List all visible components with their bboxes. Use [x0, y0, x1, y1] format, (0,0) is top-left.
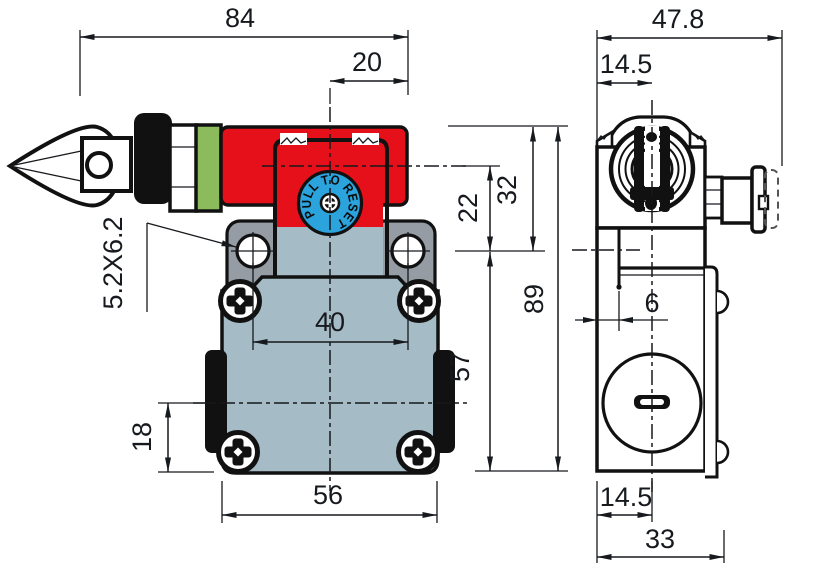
bellows-seal [134, 113, 172, 204]
front-view: PULL TO RESET 84 20 40 [10, 3, 568, 523]
svg-text:40: 40 [315, 307, 345, 337]
dim-body-depth: 33 [597, 524, 724, 563]
back-plate-edge [705, 267, 728, 477]
svg-text:14.5: 14.5 [600, 49, 653, 79]
dim-top-offset: 14.5 [597, 49, 652, 83]
drawing-canvas: PULL TO RESET 84 20 40 [0, 0, 837, 573]
svg-text:33: 33 [645, 524, 675, 554]
svg-text:32: 32 [492, 175, 522, 205]
cover-screw [400, 282, 439, 321]
reset-knob-side [705, 167, 778, 232]
svg-text:84: 84 [225, 3, 255, 33]
dim-body-width: 56 [222, 480, 437, 523]
dim-knob-to-right: 20 [330, 47, 408, 104]
hex-nut [170, 125, 197, 211]
head-ear-left [597, 132, 612, 147]
svg-text:89: 89 [519, 284, 549, 314]
head-ear-right [690, 132, 705, 147]
rope-eye [10, 126, 131, 205]
flange-notch-right [352, 133, 379, 145]
svg-text:5.2X6.2: 5.2X6.2 [98, 216, 128, 309]
dim-tab-to-bottom: 18 [127, 403, 214, 472]
flange-notch-left [280, 133, 307, 145]
eye-hole [87, 153, 111, 177]
svg-text:18: 18 [127, 422, 157, 452]
dim-top-to-holes: 32 [448, 126, 568, 251]
technical-drawing: PULL TO RESET 84 20 40 [0, 0, 837, 573]
seal-ring [196, 125, 221, 211]
dim-slot-hole-callout: 5.2X6.2 [98, 216, 236, 312]
svg-text:57: 57 [445, 352, 475, 382]
cover-screw [399, 433, 438, 472]
svg-text:22: 22 [453, 193, 483, 223]
svg-text:56: 56 [313, 480, 343, 510]
svg-text:6: 6 [644, 288, 659, 318]
svg-text:14.5: 14.5 [600, 482, 653, 512]
svg-text:47.8: 47.8 [652, 4, 705, 34]
side-view: 47.8 14.5 6 14.5 33 [572, 4, 782, 563]
svg-text:20: 20 [352, 47, 382, 77]
cover-screw [219, 433, 258, 472]
